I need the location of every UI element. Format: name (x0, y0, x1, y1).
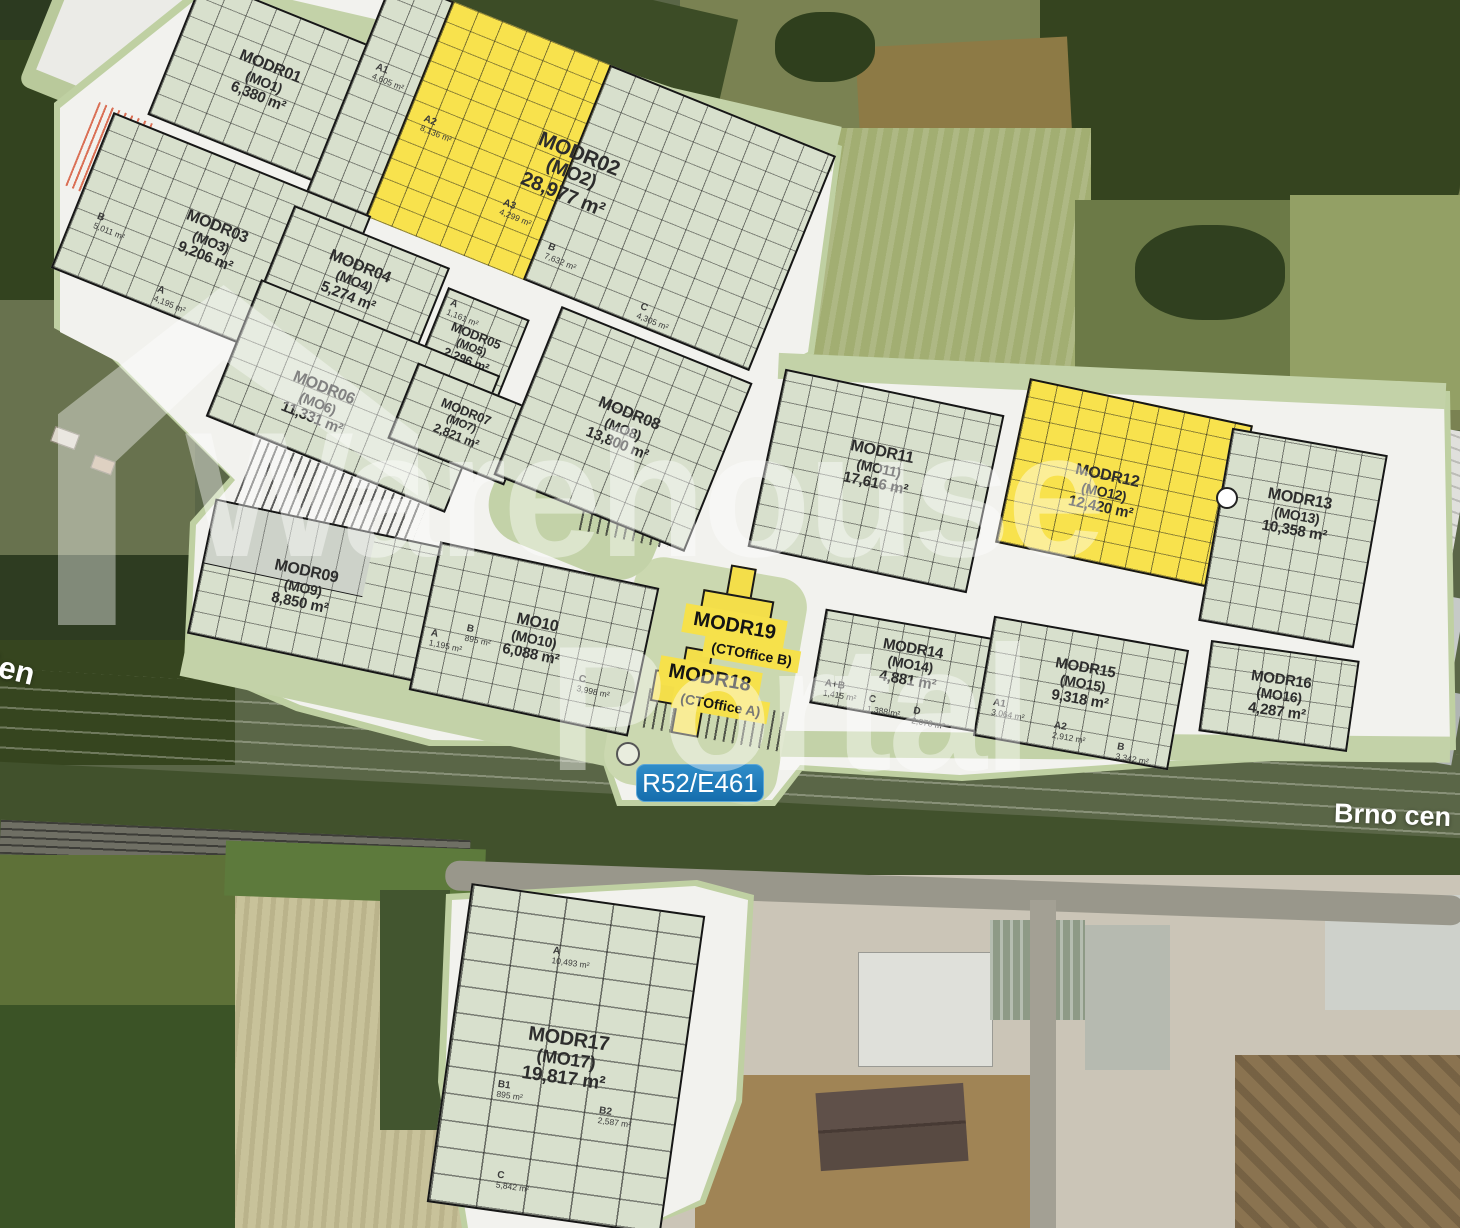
unit-label: C5,842 m² (495, 1170, 531, 1195)
unit-label: A22,912 m² (1051, 720, 1088, 746)
site-plan-map: MODR01(MO1)6,380 m² MODR02(MO2)28,977 m²… (0, 0, 1460, 1228)
unit-label: A4,195 m² (152, 284, 191, 315)
unit-label: B5,011 m² (92, 211, 130, 242)
building-label: MODR17(MO17)19,817 m² (429, 885, 703, 1228)
roundabout-icon (616, 742, 640, 766)
timber-yard (1235, 1055, 1460, 1228)
building-label: MODR13(MO13)10,358 m² (1200, 430, 1385, 646)
unit-label: B7,632 m² (543, 241, 582, 272)
road-number-badge: R52/E461 (636, 764, 764, 802)
silo-icon (1216, 487, 1238, 509)
unit-label: B1895 m² (496, 1079, 525, 1103)
unit-label: A14,605 m² (370, 62, 409, 93)
local-road (1030, 900, 1056, 1228)
unit-label: A1,161 m² (445, 297, 484, 328)
unit-label: B895 m² (464, 623, 494, 648)
building-label: MODR16(MO16)4,287 m² (1201, 642, 1358, 749)
shed-roof (858, 952, 993, 1067)
shed-roof (1085, 925, 1170, 1070)
unit-label: A10,493 m² (551, 945, 592, 970)
road-destination-right: Brno cen (1333, 798, 1451, 833)
barn-roof (815, 1083, 968, 1171)
unit-label: C3,998 m² (576, 673, 613, 700)
unit-label: A13,064 m² (990, 697, 1027, 723)
unit-label: A+B1,415 m² (822, 678, 859, 704)
satellite-field (0, 1005, 250, 1228)
building-modr13[interactable]: MODR13(MO13)10,358 m² (1198, 428, 1388, 648)
building-modr17[interactable]: MODR17(MO17)19,817 m² A10,493 m² B1895 m… (427, 883, 706, 1228)
unit-label: A1,195 m² (428, 628, 465, 655)
satellite-trees (775, 12, 875, 82)
satellite-field (0, 855, 255, 1020)
satellite-trees (380, 890, 450, 1130)
satellite-trees (1135, 225, 1285, 320)
satellite-forest (1040, 0, 1460, 215)
unit-label: B22,587 m² (597, 1105, 633, 1130)
